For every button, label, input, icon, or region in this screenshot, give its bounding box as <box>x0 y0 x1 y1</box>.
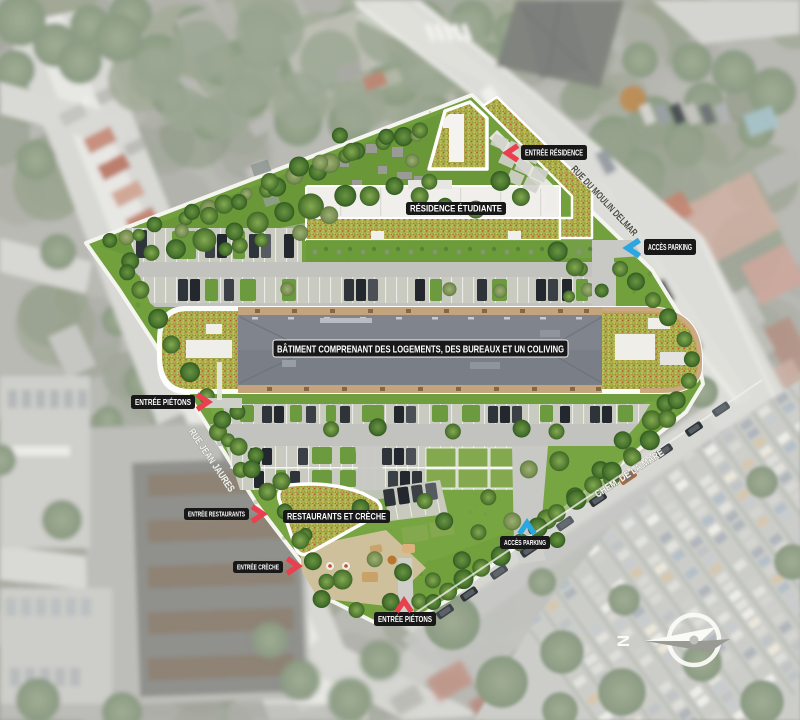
svg-text:ENTRÉE PIÉTONS: ENTRÉE PIÉTONS <box>135 398 192 407</box>
svg-text:RÉSIDENCE ÉTUDIANTE: RÉSIDENCE ÉTUDIANTE <box>410 204 502 214</box>
svg-text:ENTRÉE RESTAURANTS: ENTRÉE RESTAURANTS <box>188 510 245 519</box>
svg-text:ACCÈS PARKING: ACCÈS PARKING <box>504 538 546 547</box>
svg-text:N: N <box>614 635 633 647</box>
svg-text:BÂTIMENT COMPRENANT DES LOGEME: BÂTIMENT COMPRENANT DES LOGEMENTS, DES B… <box>277 342 564 355</box>
svg-text:ENTRÉE RÉSIDENCE: ENTRÉE RÉSIDENCE <box>525 148 583 157</box>
svg-text:ACCÈS PARKING: ACCÈS PARKING <box>648 243 692 252</box>
svg-text:RESTAURANTS ET CRÈCHE: RESTAURANTS ET CRÈCHE <box>287 512 386 522</box>
svg-text:ENTRÉE PIÉTONS: ENTRÉE PIÉTONS <box>378 615 433 624</box>
svg-text:ENTRÉE CRÈCHE: ENTRÉE CRÈCHE <box>237 563 279 572</box>
